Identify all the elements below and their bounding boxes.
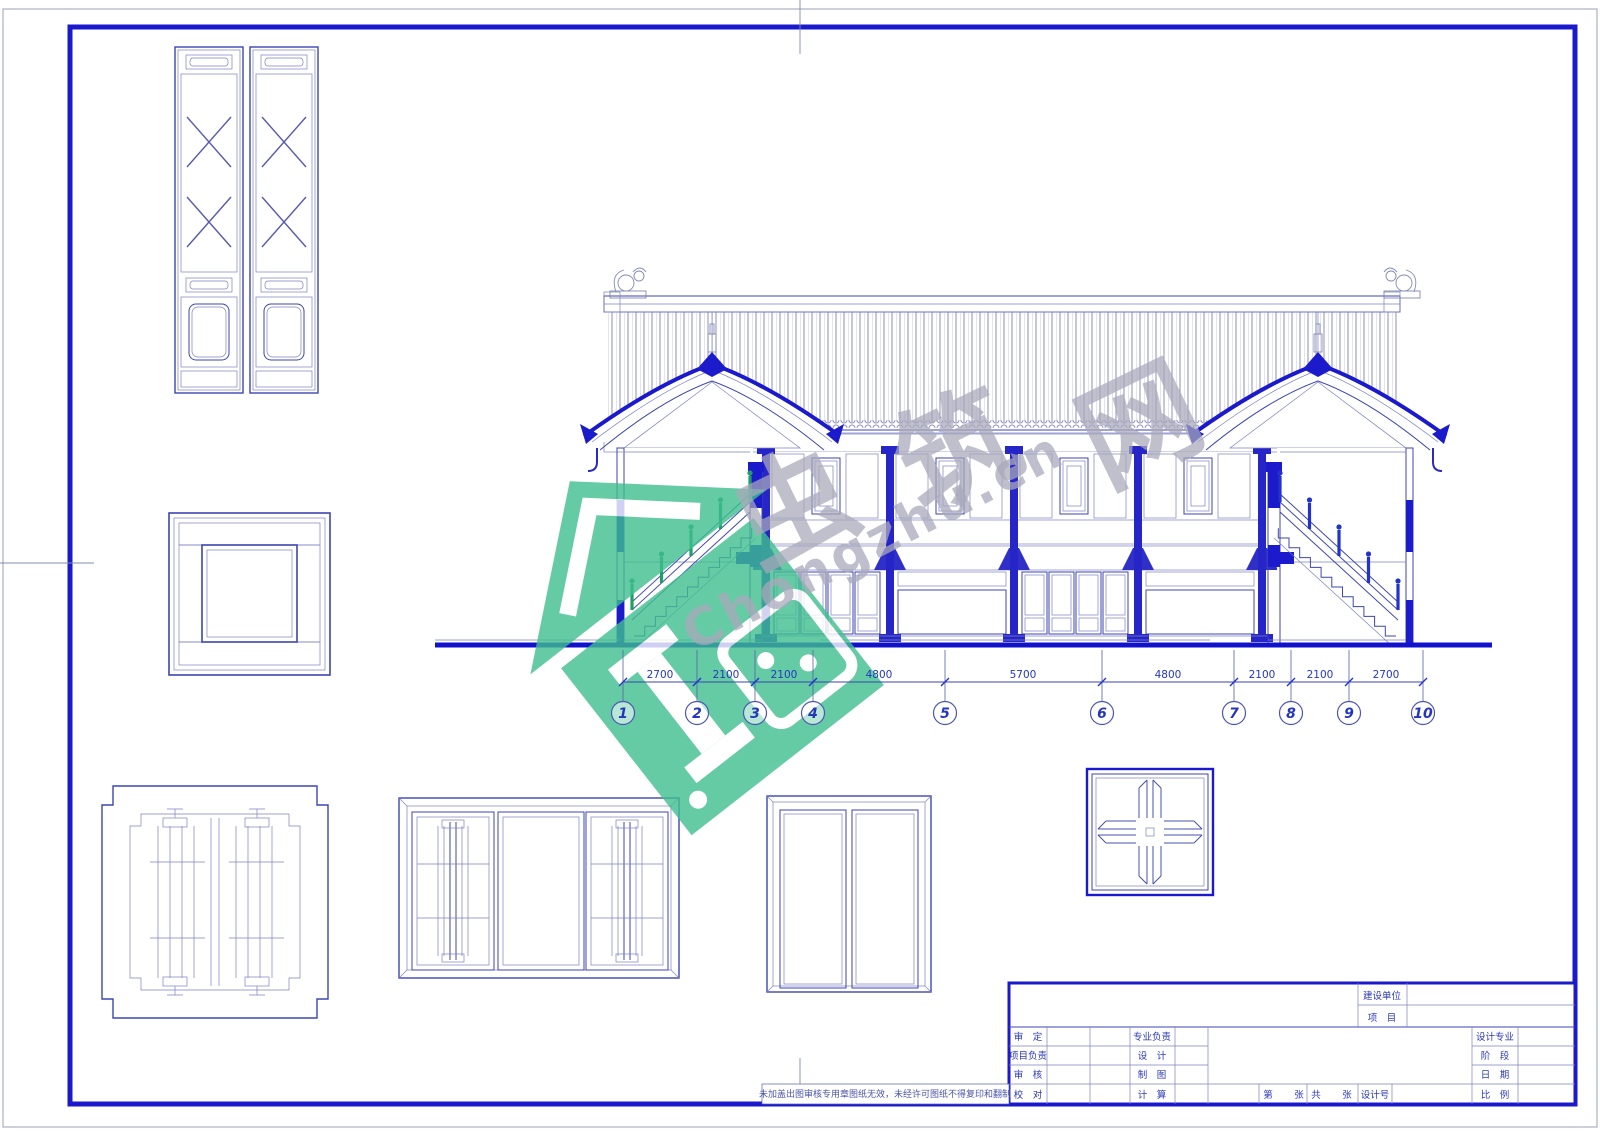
disclaimer: 未加盖出图审核专用章图纸无效，未经许可图纸不得复印和翻制 [759, 1084, 1011, 1104]
ridge-ornament-left [610, 268, 646, 298]
titleblock-sheet-word-2: 张 [1342, 1090, 1352, 1101]
title-block: 建设单位 项 目 审 定 项目负责 审 核 校 对 专业负责 设 计 制 图 计… [1009, 983, 1575, 1104]
grid-bubble-label: 6 [1097, 706, 1107, 722]
titleblock-sheet-word: 张 [1294, 1090, 1304, 1101]
titleblock-proofread-label: 校 对 [1014, 1089, 1043, 1101]
notched-caisson-panel-detail [102, 786, 328, 1018]
grid-bubble-label: 2 [692, 706, 702, 722]
titleblock-design-no-label: 设计号 [1361, 1089, 1390, 1101]
titleblock-sheet-no-prefix: 第 [1263, 1089, 1273, 1101]
dimension-label: 5700 [1010, 669, 1037, 681]
three-part-window-detail [399, 798, 679, 978]
lattice-door-pair-detail [175, 47, 318, 393]
grid-bubble-label: 9 [1344, 706, 1354, 722]
dimension-label: 4800 [866, 669, 893, 681]
drawing-sheet: 虫 筑 网 Chongzhu.cn 2700 2100 2100 4800 57… [0, 0, 1600, 1131]
grid-bubble-label: 5 [940, 706, 950, 722]
dimension-label: 2100 [1249, 669, 1276, 681]
grid-bubble-label: 7 [1229, 706, 1239, 722]
grid-bubble-label: 10 [1413, 706, 1433, 722]
dimension-label: 2700 [647, 669, 674, 681]
titleblock-draft-label: 制 图 [1138, 1069, 1167, 1081]
titleblock-discipline-lead-label: 专业负责 [1133, 1031, 1171, 1043]
titleblock-unit-label: 建设单位 [1363, 990, 1402, 1002]
dimension-label: 2100 [1307, 669, 1334, 681]
titleblock-design-discipline-label: 设计专业 [1476, 1031, 1514, 1043]
dimension-label: 4800 [1155, 669, 1182, 681]
titleblock-project-label: 项 目 [1368, 1013, 1397, 1024]
titleblock-date-label: 日 期 [1481, 1070, 1510, 1081]
titleblock-approve-label: 审 定 [1014, 1031, 1043, 1043]
pinwheel-panel-detail [1087, 769, 1213, 895]
titleblock-total-word: 共 [1311, 1090, 1321, 1101]
titleblock-stage-label: 阶 段 [1481, 1050, 1510, 1062]
grid-bubble-label: 8 [1286, 706, 1296, 722]
titleblock-project-lead-label: 项目负责 [1009, 1050, 1047, 1062]
titleblock-scale-label: 比 例 [1481, 1089, 1510, 1101]
grid-bubble-label: 3 [750, 706, 760, 722]
dimension-label: 2100 [771, 669, 798, 681]
double-lattice-door-detail [767, 796, 931, 992]
titleblock-review-label: 审 核 [1014, 1069, 1043, 1081]
ridge-ornament-right [1384, 268, 1420, 298]
dimension-label: 2700 [1373, 669, 1400, 681]
dimension-label: 2100 [713, 669, 740, 681]
architectural-drawing-canvas: 虫 筑 网 Chongzhu.cn 2700 2100 2100 4800 57… [0, 0, 1600, 1131]
disclaimer-text: 未加盖出图审核专用章图纸无效，未经许可图纸不得复印和翻制 [759, 1088, 1011, 1100]
titleblock-design-label: 设 计 [1138, 1050, 1167, 1062]
square-lattice-frame-detail [169, 513, 330, 675]
titleblock-calc-label: 计 算 [1138, 1089, 1167, 1101]
grid-bubble-label: 1 [618, 706, 628, 722]
grid-bubble-label: 4 [807, 706, 818, 722]
